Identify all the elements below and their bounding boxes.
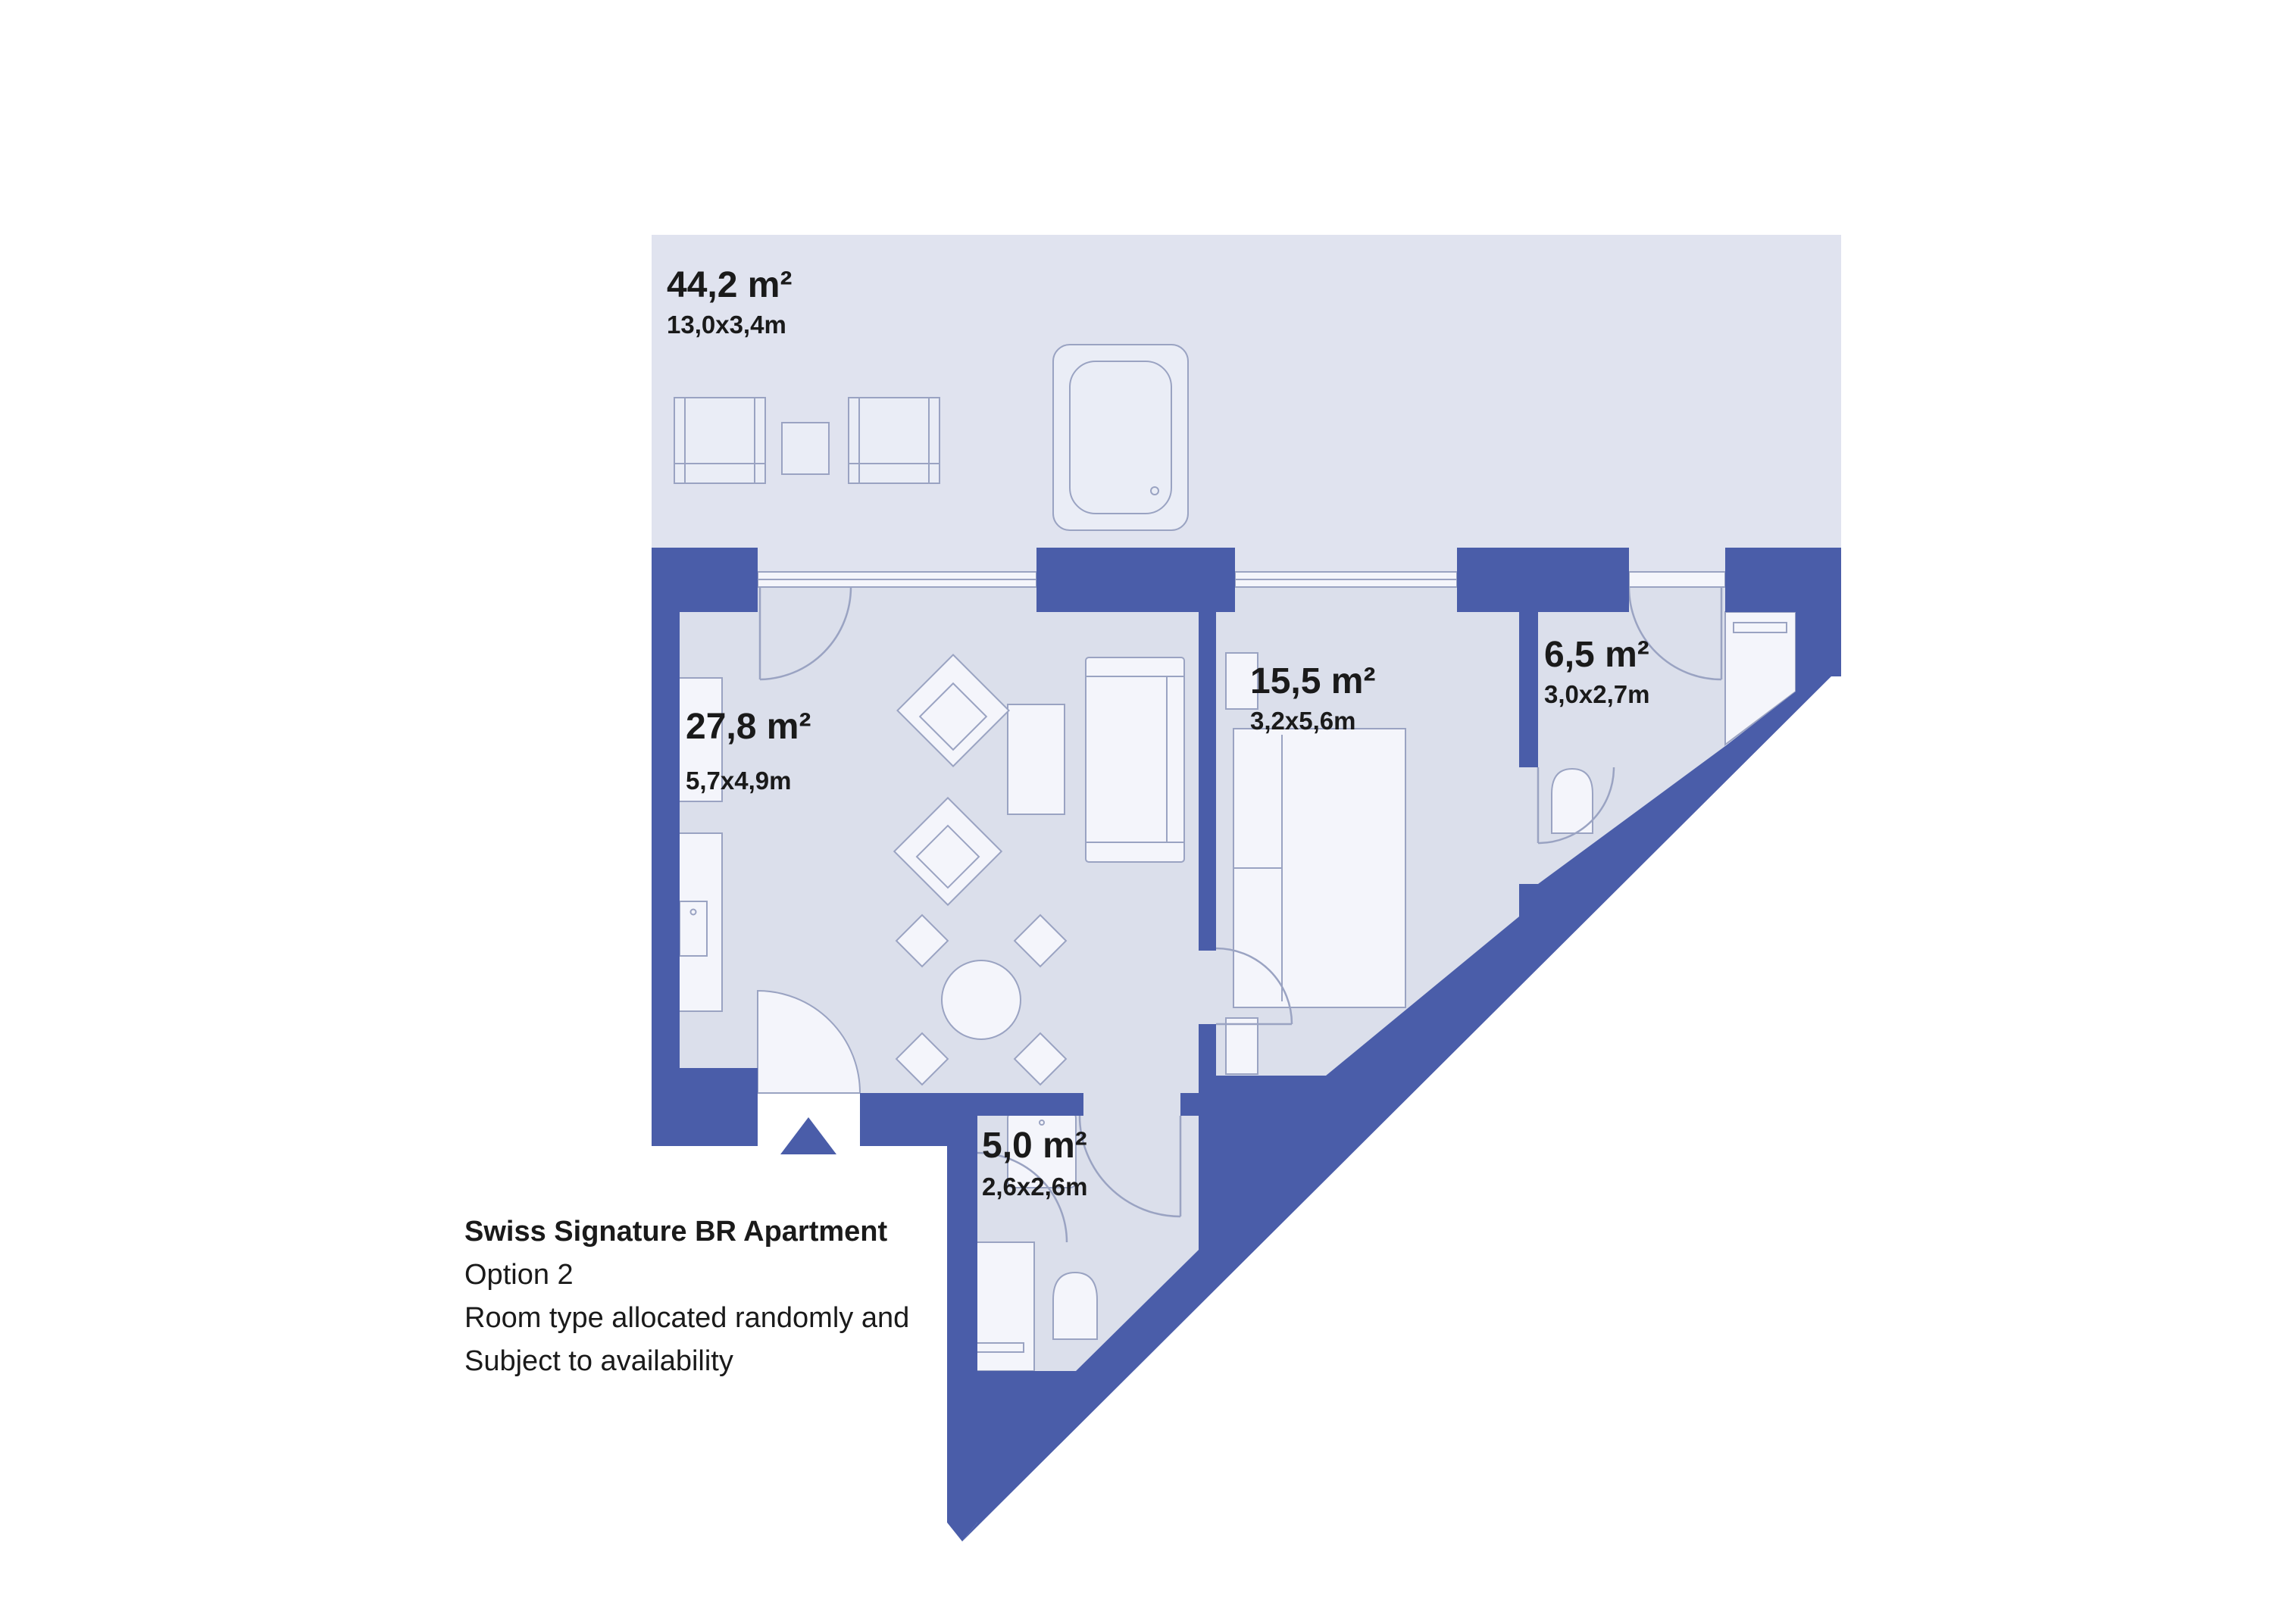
lounge-chair-right xyxy=(849,398,940,483)
coffee-table xyxy=(1008,704,1065,814)
bathroom-dims-label: 3,0x2,7m xyxy=(1544,680,1649,708)
wall-pillar-3 xyxy=(1457,548,1629,612)
caption-note-2: Subject to availability xyxy=(464,1340,995,1383)
toilet-bathroom xyxy=(1552,769,1593,833)
window-bedroom xyxy=(1235,572,1457,587)
wall-divider-living-bedroom xyxy=(1199,587,1216,951)
floor-plan: 44,2 m² 13,0x3,4m 27,8 m² 5,7x4,9m 15,5 … xyxy=(0,0,2273,1624)
bathroom-area-label: 6,5 m² xyxy=(1544,635,1649,675)
sofa xyxy=(1086,657,1184,862)
living-area-label: 27,8 m² xyxy=(686,707,811,747)
lounge-chair-left xyxy=(674,398,765,483)
wall-shower-room-top-left xyxy=(977,1093,1083,1116)
window-bathroom-door xyxy=(1629,572,1725,587)
window-living xyxy=(758,572,1036,587)
bathtub xyxy=(1053,345,1188,530)
bathroom-door-threshold xyxy=(1519,767,1538,884)
terrace-dims-label: 13,0x3,4m xyxy=(667,311,786,339)
caption-note-1: Room type allocated randomly and xyxy=(464,1297,995,1340)
wall-divider-stub xyxy=(1199,1024,1216,1093)
toilet-shower-room xyxy=(1053,1273,1097,1339)
shower-room-dims-label: 2,6x2,6m xyxy=(982,1173,1087,1201)
entrance-arrow-icon xyxy=(780,1117,836,1154)
terrace-area-label: 44,2 m² xyxy=(667,265,792,305)
terrace-floor xyxy=(652,235,1841,572)
wall-left xyxy=(652,548,680,1146)
bedroom-door-threshold xyxy=(1199,951,1216,1024)
bed xyxy=(1233,729,1405,1007)
wall-divider-bedroom-bathroom xyxy=(1519,587,1538,767)
bedroom-dims-label: 3,2x5,6m xyxy=(1250,707,1355,735)
wall-bottom-left xyxy=(652,1068,758,1146)
dining-table xyxy=(942,960,1021,1039)
nightstand-bottom xyxy=(1226,1018,1258,1074)
living-dims-label: 5,7x4,9m xyxy=(686,767,791,795)
side-table xyxy=(782,423,829,474)
caption-block: Swiss Signature BR Apartment Option 2 Ro… xyxy=(464,1210,995,1383)
caption-title: Swiss Signature BR Apartment xyxy=(464,1210,995,1254)
shower-room-threshold xyxy=(1083,1093,1180,1116)
caption-option: Option 2 xyxy=(464,1254,995,1297)
shower-room-area-label: 5,0 m² xyxy=(982,1126,1087,1166)
bedroom-area-label: 15,5 m² xyxy=(1250,661,1375,701)
